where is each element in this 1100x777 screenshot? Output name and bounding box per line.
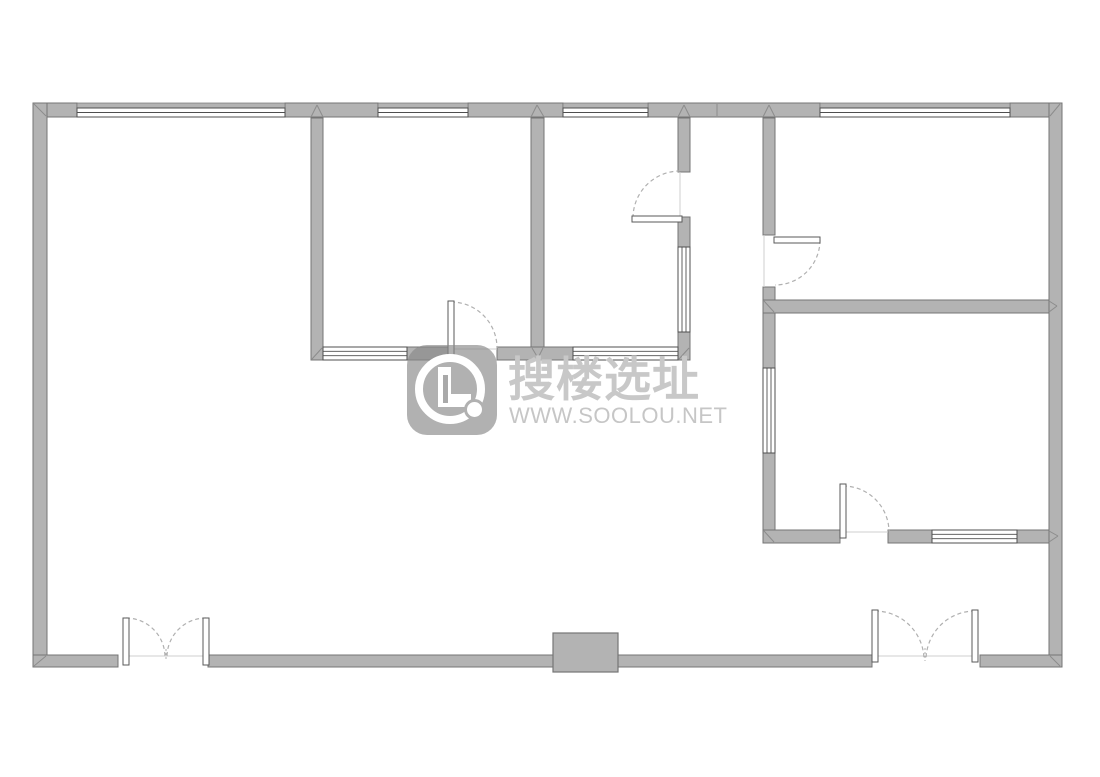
logo-dot-icon <box>467 402 482 417</box>
wall-segment <box>648 103 820 117</box>
logo-letter-shade <box>443 375 448 403</box>
window-outer-strip <box>378 103 468 108</box>
wall-segment <box>763 118 775 235</box>
door-swing-arc <box>633 171 680 218</box>
soolou-logo-icon <box>407 345 497 435</box>
door-leaf <box>872 610 878 662</box>
wall-segment <box>763 300 1049 313</box>
door-leaf <box>203 618 209 665</box>
door-swing-arc <box>875 611 924 660</box>
wall-segment <box>531 118 544 360</box>
wall-segment <box>33 103 47 667</box>
door-leaf <box>123 618 129 665</box>
door-leaf <box>632 216 682 222</box>
window-outer-strip <box>563 103 648 108</box>
door-leaf <box>774 237 820 243</box>
wall-segment <box>888 530 932 543</box>
window <box>678 247 690 332</box>
wall-segment <box>468 103 563 117</box>
floorplan-image: 搜楼选址 WWW.SOOLOU.NET <box>0 0 1100 777</box>
wall-segment <box>1017 530 1049 543</box>
door-swing-arc <box>451 302 497 348</box>
door-swing-arc <box>843 486 889 532</box>
window-outer-strip <box>820 103 1010 108</box>
wall-segment <box>285 103 378 117</box>
window <box>323 347 407 360</box>
door-swing-arc <box>126 618 165 657</box>
wall-segment <box>1049 103 1062 667</box>
wall-segment <box>678 118 690 172</box>
door-leaf <box>840 484 846 538</box>
wall-segment <box>311 118 323 360</box>
window-outer-strip <box>77 103 285 108</box>
door-leaf <box>972 610 978 662</box>
wall-segment <box>980 655 1062 667</box>
door-swing-arc <box>167 618 206 657</box>
watermark-url-text: WWW.SOOLOU.NET <box>509 403 769 429</box>
door-swing-arc <box>926 611 975 660</box>
door-swing-arc <box>775 240 820 285</box>
wall-segment <box>763 530 840 543</box>
wall-segment <box>618 655 872 667</box>
column <box>553 633 618 672</box>
wall-segment <box>208 655 553 667</box>
window <box>932 530 1017 543</box>
watermark-brand-text: 搜楼选址 <box>508 356 768 408</box>
